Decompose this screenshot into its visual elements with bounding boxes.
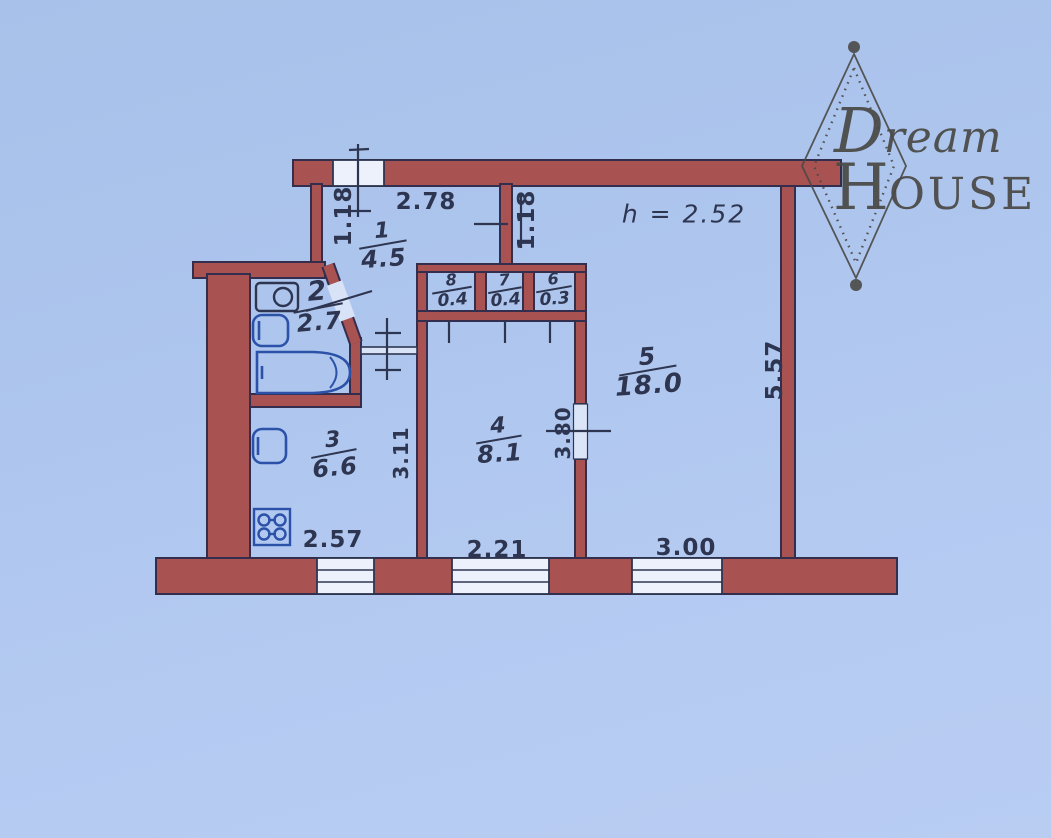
ceiling-height-label: h = 2.52 (622, 200, 746, 229)
window-kitchen (317, 558, 374, 594)
dim-window-top: 1.18 (331, 186, 357, 247)
room-1-area: 4.5 (360, 245, 407, 273)
toilet (253, 315, 288, 346)
room-3-label: 3 6.6 (309, 428, 359, 483)
window-room4 (452, 558, 549, 594)
dim-room5-depth: 5.57 (762, 340, 788, 401)
room-2-label: 2 2.7 (291, 276, 346, 336)
wall-room4-east-lower (575, 459, 586, 558)
wall-closet-divider-2 (523, 272, 534, 311)
wall-closet-divider-1 (475, 272, 486, 311)
room-6-area: 0.3 (539, 290, 570, 309)
room-8-area: 0.4 (437, 291, 468, 310)
wall-bath-south (250, 394, 361, 407)
logo-house-initial: H (833, 151, 889, 225)
dim-room5-niche: 1.18 (514, 190, 540, 251)
room-1-label: 1 4.5 (357, 219, 408, 273)
dim-room4-depth: 3.80 (551, 406, 575, 459)
room-1-number: 1 (374, 220, 391, 243)
room-6-label: 6 0.3 (535, 270, 574, 310)
room-6-number: 6 (547, 271, 559, 288)
room-4-label: 4 8.1 (474, 414, 523, 468)
room-7-area: 0.4 (490, 291, 521, 310)
logo-dot-top (848, 41, 860, 53)
dim-kitchen-depth: 3.11 (389, 426, 413, 479)
wall-closet-bottom (417, 311, 586, 321)
logo-house-rest: OUSE (889, 169, 1036, 220)
room-4-number: 4 (490, 415, 507, 438)
room-5-label: 5 18.0 (612, 342, 684, 402)
room-4-area: 8.1 (476, 440, 523, 468)
room-7-number: 7 (498, 272, 510, 289)
dim-room4-width: 2.21 (467, 537, 528, 563)
room-7-label: 7 0.4 (487, 271, 524, 311)
room-2-number: 2 (306, 277, 327, 306)
room-3-area: 6.6 (311, 454, 358, 482)
room-5-number: 5 (638, 344, 656, 370)
room-8-label: 8 0.4 (431, 271, 474, 311)
room-3-number: 3 (324, 429, 341, 453)
logo-text-house: HOUSE (833, 156, 1036, 220)
logo-dot-bottom (850, 279, 862, 291)
dim-room5-width: 3.00 (656, 535, 717, 561)
window-room5 (632, 558, 722, 594)
kitchen-sink (253, 429, 286, 463)
dim-kitchen-width: 2.57 (303, 527, 364, 553)
kitchen-doorway-partition (361, 347, 417, 354)
room-8-number: 8 (445, 272, 457, 289)
wall-left-column (207, 274, 250, 560)
closet-door-marks (449, 321, 550, 343)
bathtub (257, 352, 350, 393)
dim-hall-width: 2.78 (396, 189, 457, 215)
wall-room4-west (417, 264, 427, 558)
stove (254, 509, 290, 545)
wall-hall-west (311, 184, 322, 268)
floorplan-photo: 2.78 1.18 1.18 h = 2.52 5.57 3.80 3.11 2… (0, 0, 1051, 838)
wall-room4-east-upper (575, 264, 586, 404)
